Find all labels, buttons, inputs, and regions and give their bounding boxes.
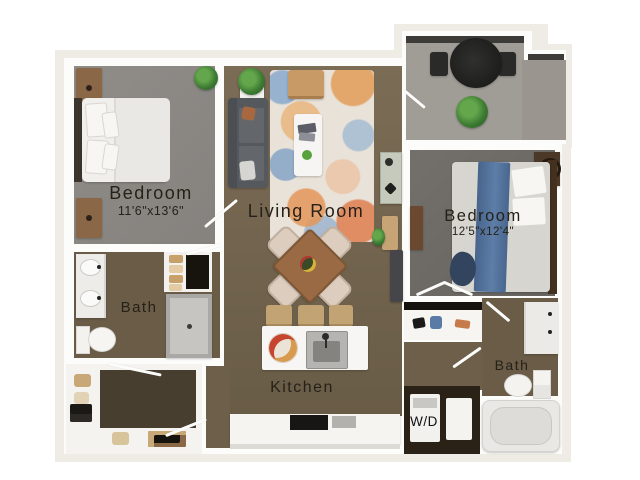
nightstand-knob bbox=[86, 215, 92, 221]
bench-plant bbox=[372, 228, 385, 246]
bathtub-basin bbox=[490, 407, 552, 445]
dresser bbox=[410, 206, 423, 250]
faucet bbox=[548, 312, 552, 316]
towels bbox=[169, 255, 183, 263]
toilet bbox=[504, 374, 532, 397]
dining-centerpiece bbox=[300, 256, 316, 272]
bed-pillow bbox=[510, 165, 548, 198]
vanity bbox=[524, 302, 558, 354]
shower-drain bbox=[187, 324, 192, 329]
balcony-chair bbox=[430, 52, 448, 76]
faucet bbox=[97, 265, 101, 269]
bedroom2-dimensions: 12'5"x12'4" bbox=[452, 226, 514, 238]
bedroom1-dimensions: 11'6"x13'6" bbox=[118, 204, 184, 218]
armchair bbox=[288, 70, 324, 99]
basket bbox=[74, 374, 91, 387]
towels bbox=[169, 284, 182, 291]
bedroom1-label: Bedroom bbox=[109, 183, 193, 204]
faucet-stem bbox=[325, 338, 327, 348]
fruit-plate bbox=[268, 333, 298, 363]
faucet bbox=[548, 330, 552, 334]
closet-shelf-top bbox=[404, 302, 482, 310]
sofa-throw-pillow bbox=[241, 106, 256, 121]
balcony-plant bbox=[456, 96, 488, 128]
floorplan-image: Bedroom 11'6"x13'6" Living Room Bedroom … bbox=[0, 0, 640, 480]
kitchen-label: Kitchen bbox=[270, 379, 334, 397]
hall2-floor bbox=[404, 342, 482, 390]
nightstand-knob bbox=[86, 85, 92, 91]
bed-headboard bbox=[74, 98, 82, 182]
basket bbox=[112, 432, 129, 445]
balcony-floor-step bbox=[522, 60, 566, 140]
bedroom2-label: Bedroom bbox=[444, 207, 521, 226]
entry-hall-floor bbox=[206, 366, 230, 448]
bedroom-plant bbox=[194, 66, 218, 90]
bath2-label: Bath bbox=[495, 357, 530, 373]
bar-stool bbox=[298, 305, 324, 327]
sofa-back bbox=[228, 98, 237, 188]
refrigerator bbox=[390, 250, 403, 302]
counter-shadow bbox=[230, 444, 400, 449]
bath1-label: Bath bbox=[121, 299, 158, 316]
shoes bbox=[412, 317, 426, 329]
sofa-blanket bbox=[239, 160, 256, 180]
washer-panel bbox=[413, 398, 437, 408]
towels bbox=[169, 275, 183, 283]
linen-closet-interior bbox=[186, 255, 209, 289]
toilet bbox=[88, 327, 116, 352]
balcony-table bbox=[450, 38, 502, 88]
coffee-table-books bbox=[299, 132, 316, 141]
bed-duvet bbox=[114, 98, 170, 182]
bag bbox=[430, 316, 442, 329]
towels bbox=[169, 265, 183, 273]
faucet bbox=[97, 296, 101, 300]
stove bbox=[290, 415, 328, 430]
storage-boxes bbox=[70, 404, 92, 422]
bar-stool bbox=[266, 305, 292, 327]
walkin-closet-floor bbox=[100, 370, 196, 428]
bar-stool bbox=[329, 305, 353, 327]
living-plant bbox=[238, 68, 265, 95]
cutting-board bbox=[332, 416, 356, 428]
toilet-tank bbox=[533, 370, 551, 399]
dryer bbox=[446, 398, 472, 440]
console-decor bbox=[385, 158, 393, 166]
coffee-table-plant bbox=[302, 150, 312, 160]
laundry-label: W/D bbox=[410, 414, 438, 429]
basket bbox=[74, 392, 89, 404]
living-room-label: Living Room bbox=[248, 201, 365, 222]
